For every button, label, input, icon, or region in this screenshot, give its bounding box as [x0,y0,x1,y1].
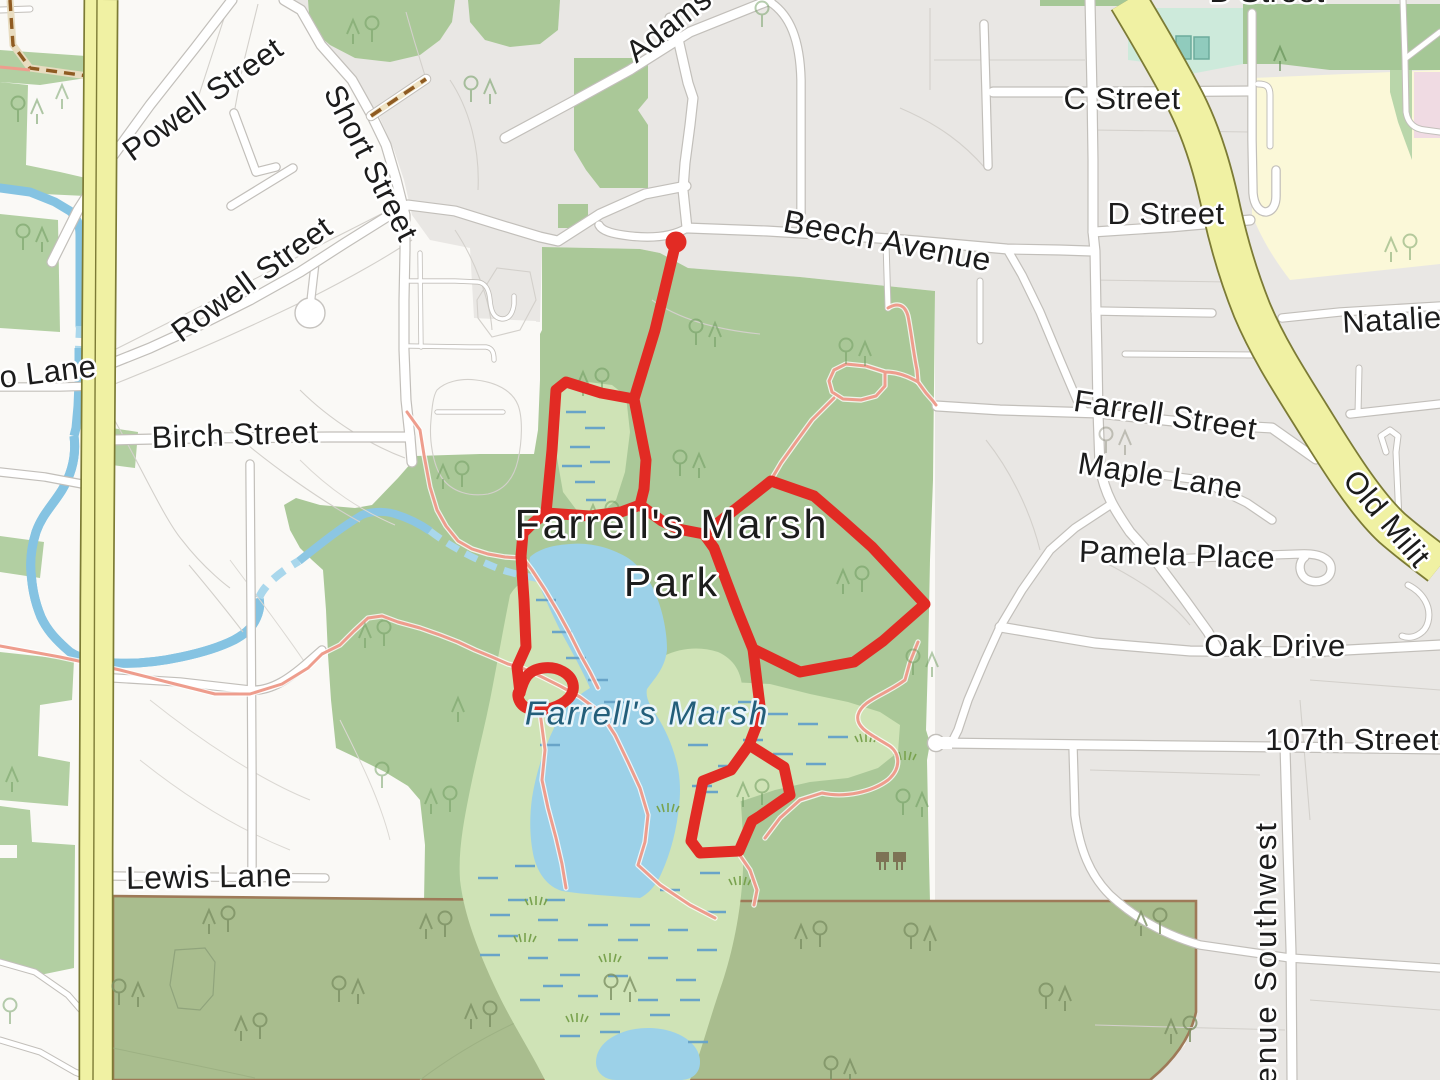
svg-text:Pamela Place: Pamela Place [1078,534,1275,576]
svg-text:Birch Street: Birch Street [151,414,319,455]
svg-text:Oak Drive: Oak Drive [1204,628,1345,663]
svg-text:B Street: B Street [1209,0,1324,9]
svg-text:C Street: C Street [1064,81,1181,116]
svg-text:D Street: D Street [1108,196,1225,231]
svg-text:Farrell's Marsh: Farrell's Marsh [515,501,830,547]
svg-text:107th Street: 107th Street [1265,722,1439,757]
svg-text:Natalie: Natalie [1341,300,1440,340]
svg-text:Park: Park [624,559,720,605]
svg-text:Lewis Lane: Lewis Lane [126,857,292,896]
svg-text:Farrell's Marsh: Farrell's Marsh [525,695,769,732]
svg-text:Avenue Southwest: Avenue Southwest [1248,820,1283,1080]
